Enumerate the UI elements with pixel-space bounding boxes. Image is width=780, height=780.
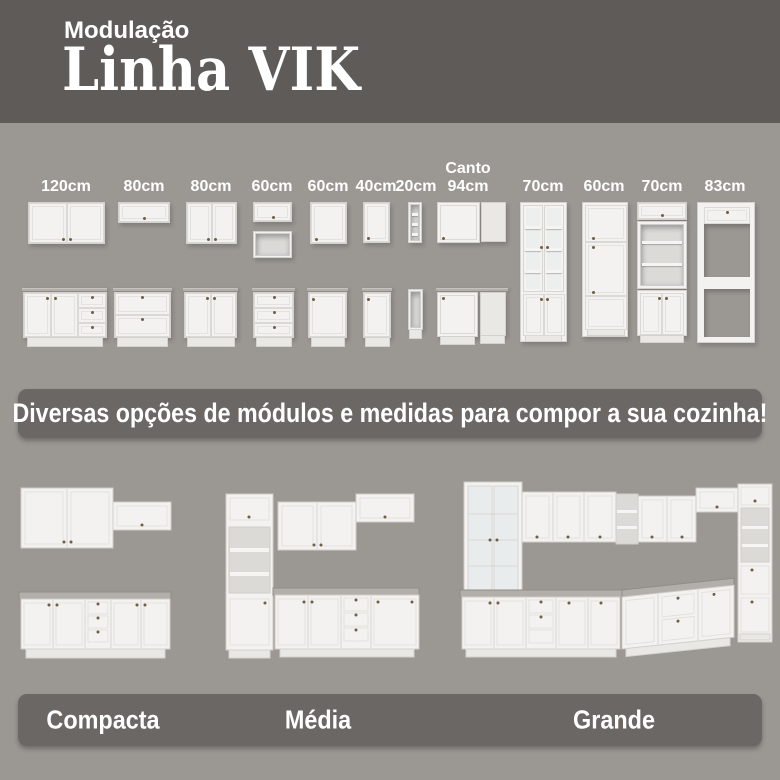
knob	[273, 326, 276, 329]
banner: Diversas opções de módulos e medidas par…	[18, 389, 762, 438]
shelf	[525, 270, 541, 273]
shelf	[546, 226, 562, 229]
module-size-label: 20cm	[396, 178, 437, 196]
wall-cabinet	[118, 202, 170, 223]
wall-corner-cabinet	[437, 202, 480, 243]
oven-cavity	[704, 289, 750, 337]
door	[440, 295, 475, 334]
knob	[367, 237, 370, 240]
shelf-opening	[410, 291, 421, 328]
base-cabinet	[363, 292, 391, 338]
door	[585, 205, 627, 242]
kitchen-label-grande: Grande	[573, 705, 655, 736]
knob	[91, 296, 94, 299]
shelf	[412, 223, 418, 226]
knob	[592, 237, 595, 240]
grande-wall-cabinets-left	[522, 492, 638, 544]
module-70cm-glass-tall: 70cm	[519, 176, 571, 348]
plinth	[525, 336, 562, 342]
knob	[273, 296, 276, 299]
grande-base-left	[460, 590, 622, 657]
knob	[540, 246, 543, 249]
promo-page: Modulação Linha VIK 120cm	[0, 0, 780, 780]
compacta-wall-cabinets	[21, 488, 171, 548]
module-canto-94cm: Canto 94cm	[436, 158, 510, 348]
plinth	[365, 338, 390, 347]
knob	[91, 311, 94, 314]
module-20cm: 20cm	[407, 176, 427, 348]
knob	[592, 246, 595, 249]
plinth	[187, 338, 235, 347]
shelf	[525, 248, 541, 251]
tower-flap-cabinet	[637, 202, 687, 220]
shelf	[642, 263, 682, 266]
oven-cavity	[704, 224, 750, 277]
plinth	[640, 336, 684, 343]
module-80cm-flap: 80cm	[113, 176, 175, 348]
door	[187, 203, 212, 243]
media-base-cabinets	[273, 588, 419, 657]
door	[585, 242, 627, 296]
wall-cabinet	[363, 202, 390, 243]
tall-glass-cabinet	[520, 202, 567, 342]
knob	[540, 298, 543, 301]
knob	[367, 298, 370, 301]
kitchen-label-media: Média	[285, 705, 351, 736]
module-size-label: 120cm	[41, 178, 91, 196]
module-60cm-pantry: 60cm	[581, 176, 631, 348]
shelf-opening	[640, 224, 684, 286]
module-120cm: 120cm	[22, 176, 112, 348]
niche-opening	[255, 233, 290, 256]
wall-cabinet	[28, 202, 105, 244]
module-40cm: 40cm	[362, 176, 394, 348]
kitchen-sizes-bar: Compacta Média Grande	[18, 694, 762, 746]
module-60cm-door: 60cm	[307, 176, 351, 348]
door	[212, 203, 236, 243]
media-wall-cabinets	[278, 494, 414, 550]
grande-wall-cabinets-back	[638, 488, 738, 542]
knob	[54, 297, 57, 300]
knob	[272, 216, 275, 219]
module-60cm-niche: 60cm	[252, 176, 298, 348]
module-83cm-oven-tower: 83cm	[696, 176, 758, 348]
door	[585, 296, 627, 330]
shelf	[412, 213, 418, 216]
knob	[213, 297, 216, 300]
module-size-label: 60cm	[584, 178, 625, 196]
module-size-label-line2: 94cm	[445, 178, 490, 196]
wall-cabinet	[310, 202, 347, 244]
knob	[69, 238, 72, 241]
knob	[315, 238, 318, 241]
module-size-label: Canto 94cm	[445, 160, 490, 196]
kitchen-grande-illustration	[456, 474, 776, 666]
wall-cabinet	[253, 202, 292, 222]
module-size-label: 70cm	[642, 178, 683, 196]
plinth	[256, 338, 292, 347]
knob	[442, 297, 445, 300]
plinth	[311, 338, 345, 347]
knob	[312, 298, 315, 301]
base-corner-side	[480, 292, 506, 336]
module-size-label: 60cm	[252, 178, 293, 196]
knob	[62, 238, 65, 241]
media-tower	[226, 494, 273, 658]
module-size-label: 80cm	[124, 178, 165, 196]
banner-text: Diversas opções de módulos e medidas par…	[13, 398, 768, 429]
module-size-label: 70cm	[523, 178, 564, 196]
header: Modulação Linha VIK	[0, 0, 780, 123]
knob	[206, 297, 209, 300]
wall-cabinet	[186, 202, 237, 244]
plinth	[409, 330, 422, 339]
base-cabinet	[114, 292, 171, 338]
shelf-opening	[410, 204, 420, 241]
module-size-label: 80cm	[191, 178, 232, 196]
open-niche-cabinet	[253, 231, 292, 258]
shelf	[642, 241, 682, 244]
knob	[214, 238, 217, 241]
plinth	[480, 336, 505, 344]
plinth	[117, 338, 168, 347]
base-cabinet	[253, 292, 294, 338]
knob	[665, 297, 668, 300]
plinth	[27, 338, 103, 347]
grande-base-right	[622, 578, 734, 657]
base-cabinet	[23, 292, 107, 338]
knob	[141, 296, 144, 299]
knob	[273, 311, 276, 314]
module-size-label: 60cm	[308, 178, 349, 196]
wall-corner-side	[481, 202, 506, 242]
module-size-label: 40cm	[356, 178, 397, 196]
knob	[207, 238, 210, 241]
base-corner-cabinet	[437, 292, 478, 337]
door	[311, 203, 346, 243]
kitchen-label-compacta: Compacta	[46, 705, 159, 736]
base-open-shelf	[408, 289, 423, 330]
door	[67, 203, 104, 243]
base-cabinet	[308, 292, 347, 338]
shelf	[546, 270, 562, 273]
tower-open-shelves	[637, 221, 687, 289]
knob	[658, 297, 661, 300]
knob	[442, 237, 445, 240]
module-80cm-doors: 80cm	[183, 176, 241, 348]
module-size-label: 83cm	[705, 178, 746, 196]
module-70cm-tower: 70cm	[636, 176, 692, 348]
plinth	[587, 330, 625, 336]
knob	[592, 291, 595, 294]
page-title: Linha VIK	[62, 38, 360, 102]
wall-open-shelf	[408, 202, 422, 243]
shelf	[412, 233, 418, 236]
knob	[546, 298, 549, 301]
base-cabinet	[184, 292, 237, 338]
knob	[661, 214, 664, 217]
oven-tower-frame	[697, 202, 755, 343]
compacta-base-cabinets	[19, 592, 171, 658]
shelf	[525, 226, 541, 229]
knob	[46, 297, 49, 300]
knob	[143, 217, 146, 220]
door	[29, 203, 67, 243]
knob	[726, 211, 729, 214]
tower-base-cabinet	[637, 290, 687, 336]
tall-pantry-cabinet	[582, 202, 628, 337]
kitchen-compacta-illustration	[15, 482, 175, 662]
knob	[141, 318, 144, 321]
knob	[546, 246, 549, 249]
module-size-label-line1: Canto	[445, 160, 490, 178]
plinth	[440, 337, 475, 345]
knob	[91, 326, 94, 329]
drawer	[704, 207, 750, 224]
door	[440, 205, 477, 240]
grande-right-tower	[738, 484, 772, 642]
kitchen-media-illustration	[222, 482, 422, 662]
